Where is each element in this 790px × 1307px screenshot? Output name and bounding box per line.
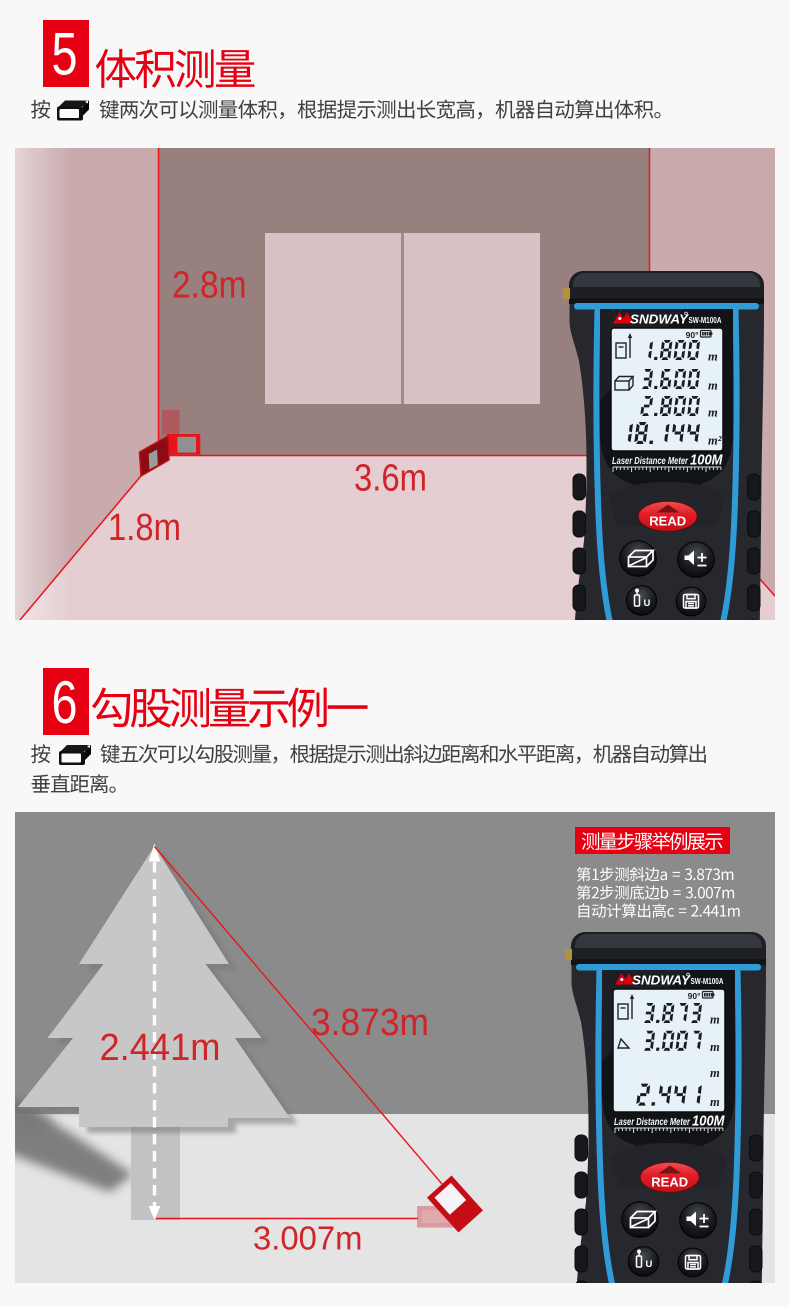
svg-text:3.873m: 3.873m (311, 1002, 429, 1044)
svg-text:90°: 90° (686, 330, 699, 340)
svg-text:SW-M100A: SW-M100A (691, 977, 724, 986)
svg-text:U: U (646, 1259, 653, 1270)
svg-text:SNDWAY: SNDWAY (632, 973, 691, 988)
svg-text:m: m (710, 1013, 720, 1027)
svg-text:READ: READ (649, 514, 686, 529)
svg-text:m²: m² (708, 434, 722, 448)
svg-text:3.007m: 3.007m (253, 1220, 363, 1257)
svg-text:m: m (708, 406, 718, 420)
svg-text:Laser Distance Meter: Laser Distance Meter (612, 455, 689, 467)
svg-text:2.441m: 2.441m (100, 1027, 221, 1069)
svg-text:m: m (710, 1066, 720, 1080)
svg-text:Laser Distance Meter: Laser Distance Meter (614, 1116, 691, 1128)
svg-text:1.8m: 1.8m (108, 507, 181, 549)
svg-text:SW-M100A: SW-M100A (689, 316, 722, 325)
svg-text:3.6m: 3.6m (354, 458, 427, 500)
svg-text:m: m (708, 350, 718, 364)
svg-text:100M: 100M (692, 1114, 725, 1130)
svg-text:5: 5 (51, 21, 77, 88)
svg-text:m: m (710, 1095, 720, 1109)
svg-text:SNDWAY: SNDWAY (630, 312, 689, 327)
svg-text:READ: READ (651, 1175, 688, 1190)
svg-text:6: 6 (51, 669, 77, 736)
svg-text:2.8m: 2.8m (172, 265, 247, 307)
svg-text:m: m (708, 379, 718, 393)
svg-text:m: m (710, 1040, 720, 1054)
svg-text:U: U (644, 598, 651, 609)
svg-text:100M: 100M (690, 453, 723, 469)
svg-text:90°: 90° (688, 991, 701, 1001)
